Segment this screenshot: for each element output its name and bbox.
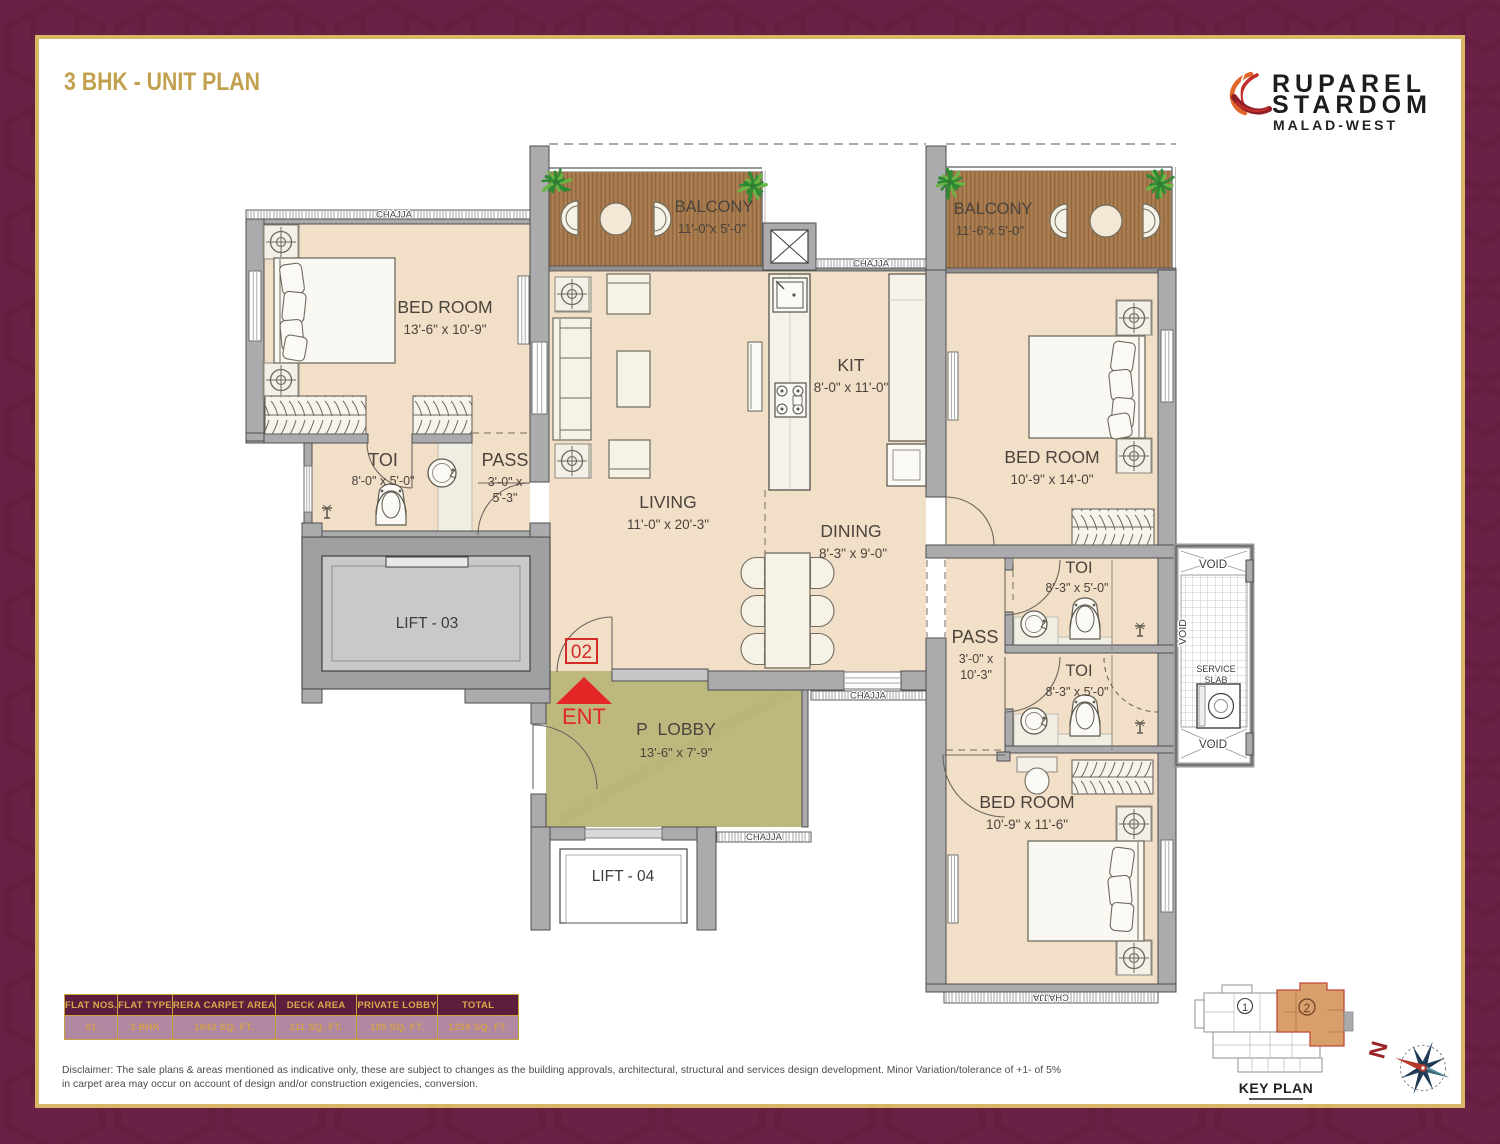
svg-text:STARDOM: STARDOM — [1272, 91, 1428, 119]
svg-text:MALAD-WEST: MALAD-WEST — [1273, 117, 1397, 133]
